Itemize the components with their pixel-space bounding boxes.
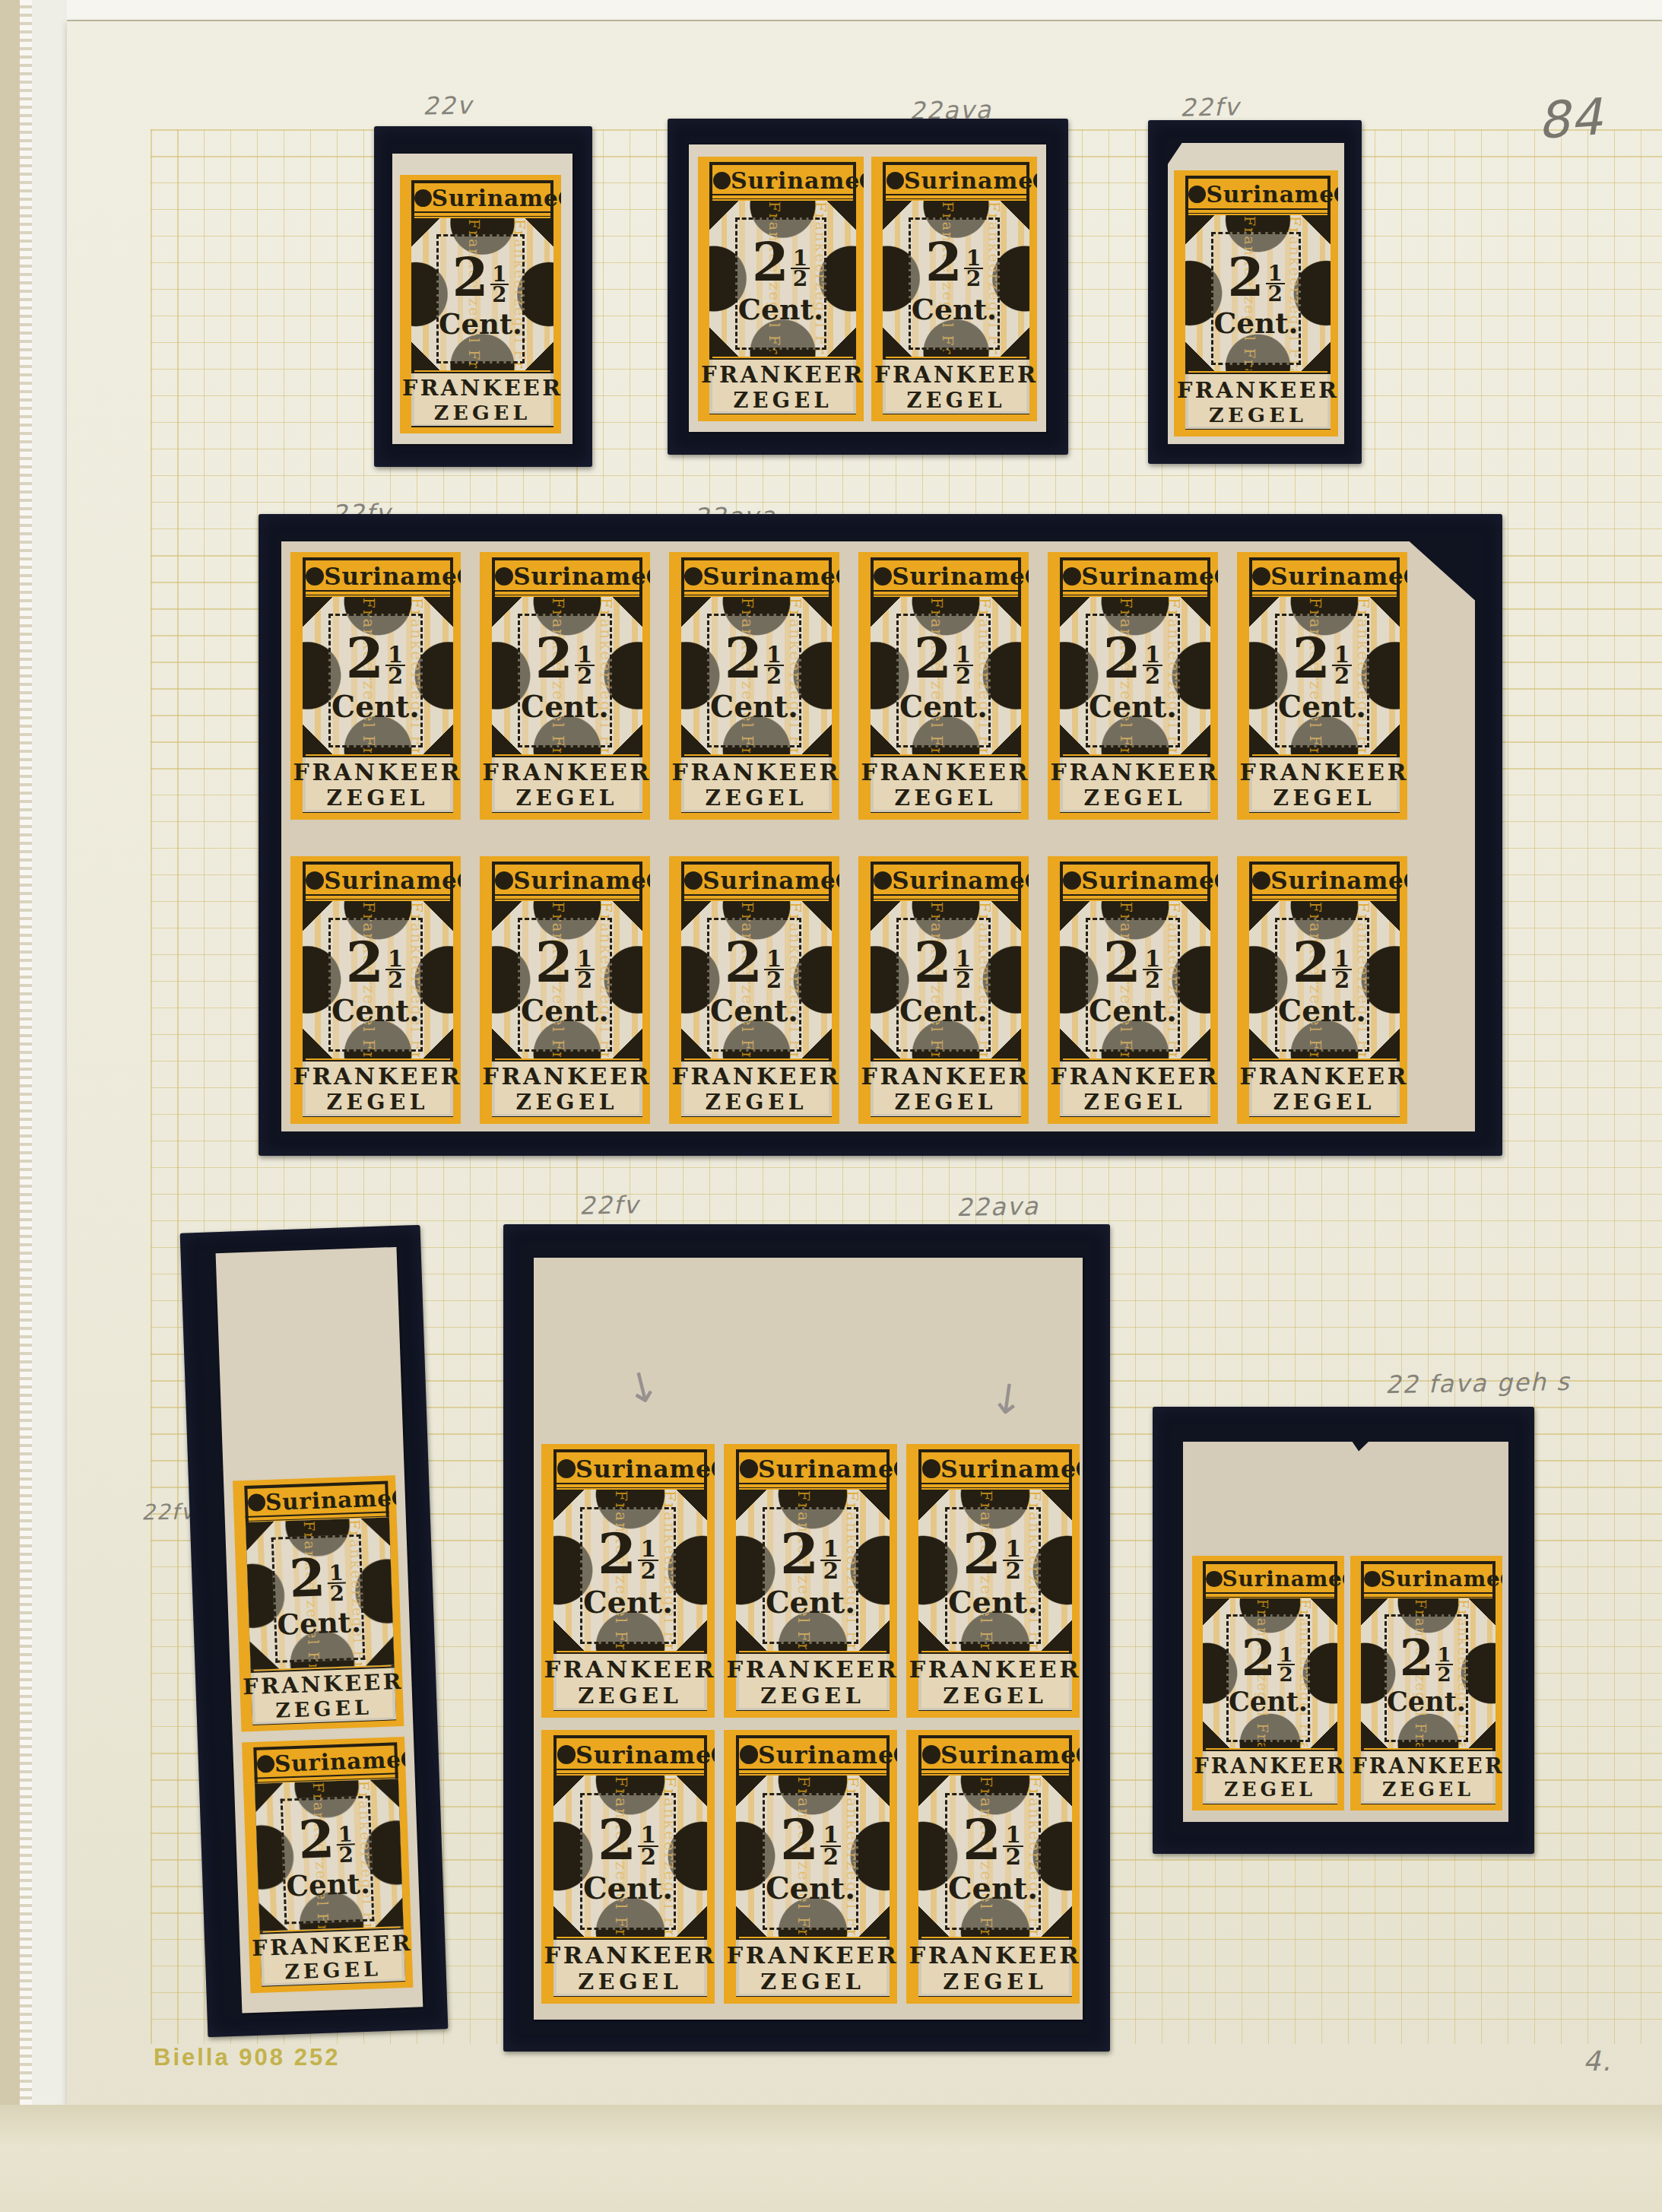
ornament-dot-icon: [1404, 567, 1407, 586]
stamp-value-number: 2 1 2: [963, 1531, 1023, 1582]
stamp-rule: [918, 1769, 1072, 1774]
stamp-value-fraction: 1 2: [575, 949, 595, 990]
stamp-bottom-line2: ZEGEL: [1224, 1778, 1316, 1801]
ornament-dot-icon: [1404, 871, 1407, 890]
stamp-value-int: 2: [963, 1817, 1001, 1862]
annotation-bottom-block-right: 22ava: [956, 1192, 1040, 1222]
stamp-country-label: Suriname: [513, 563, 647, 590]
stamp-value-number: 2 1 2: [925, 241, 983, 288]
stamp-value-int: 2: [297, 1818, 335, 1861]
stamp-value-fraction: 1 2: [1277, 1646, 1295, 1683]
stamp-value-int: 2: [1292, 941, 1331, 985]
ornament-dot-icon: [1343, 1571, 1344, 1588]
stamp-rule: [918, 1483, 1072, 1488]
stamp-value-int: 2: [914, 941, 952, 985]
fraction-denominator: 2: [766, 666, 782, 686]
stamp-country-label: Suriname: [1223, 1566, 1343, 1592]
ornament-dot-icon: [647, 567, 650, 586]
stamp-grid: Frankeerzegel Suriname Frankeerzegel Fra…: [281, 541, 1475, 1124]
stamp-bottom-line2: ZEGEL: [705, 785, 807, 811]
suriname-stamp: Frankeerzegel Suriname Frankeerzegel Fra…: [1350, 1556, 1502, 1811]
stamp-value-fraction: 1 2: [820, 1825, 841, 1867]
ornament-dot-icon: [894, 1745, 897, 1763]
stamp-value-unit: Cent.: [1278, 993, 1366, 1028]
fraction-denominator: 2: [338, 1845, 354, 1864]
stamp-value-fraction: 1 2: [953, 645, 973, 686]
stamp-value-box: 2 1 2 Cent.: [763, 1793, 858, 1930]
stamp-rule: [1361, 1592, 1495, 1598]
stamp-value-int: 2: [1400, 1639, 1434, 1678]
ornament-dot-icon: [1063, 871, 1081, 890]
stamp-grid: Frankeerzegel Suriname Frankeerzegel Fra…: [1168, 143, 1344, 436]
stamp-value-unit: Cent.: [912, 292, 997, 326]
ornament-dot-icon: [684, 567, 703, 586]
stamp-value-number: 2 1 2: [725, 636, 784, 685]
stamp-value-int: 2: [780, 1531, 819, 1576]
fraction-denominator: 2: [956, 970, 971, 990]
stamp-bottom-band: FRANKEER ZEGEL: [492, 756, 642, 812]
ornament-dot-icon: [647, 871, 650, 890]
ornament-dot-icon: [1215, 567, 1218, 586]
ornament-dot-icon: [836, 567, 839, 586]
stamp-value-int: 2: [288, 1557, 325, 1599]
stamp-country-band: Suriname: [411, 185, 554, 212]
stamp-paper: Frankeerzegel Suriname Frankeerzegel Fra…: [1183, 1442, 1508, 1822]
stamp-value-box: 2 1 2 Cent.: [763, 1507, 858, 1644]
stamp-value-number: 2 1 2: [780, 1531, 841, 1582]
stamp-bottom-line1: FRANKEER: [243, 1668, 404, 1699]
stamp-value-int: 2: [535, 636, 573, 681]
fraction-denominator: 2: [577, 970, 592, 990]
stamp-value-box: 2 1 2 Cent.: [436, 234, 525, 363]
stamp-value-unit: Cent.: [710, 689, 798, 724]
stamp-country-label: Suriname: [576, 1455, 712, 1483]
stamp-bottom-line2: ZEGEL: [578, 1969, 682, 1995]
stamp-value-fraction: 1 2: [1435, 1646, 1453, 1683]
stamp-bottom-band: FRANKEER ZEGEL: [1249, 756, 1400, 812]
stamp-value-box: 2 1 2 Cent.: [271, 1534, 365, 1663]
stamp-bottom-band: FRANKEER ZEGEL: [681, 756, 832, 812]
stamp-value-fraction: 1 2: [575, 645, 595, 686]
page-number: 84: [1535, 87, 1604, 151]
ornament-dot-icon: [414, 189, 432, 207]
fraction-denominator: 2: [823, 1847, 839, 1868]
stamp-bottom-line1: FRANKEER: [1051, 1063, 1218, 1090]
stamp-value-number: 2 1 2: [914, 636, 973, 685]
stamp-value-unit: Cent.: [1089, 993, 1177, 1028]
stamp-value-fraction: 1 2: [791, 249, 810, 289]
stamp-value-unit: Cent.: [1278, 689, 1366, 724]
ornament-dot-icon: [306, 871, 324, 890]
stamp-country-label: Suriname: [1270, 563, 1404, 590]
stamp-country-label: Suriname: [324, 563, 458, 590]
stamp-value-int: 2: [925, 241, 963, 284]
stamp-country-band: Suriname: [1185, 180, 1331, 208]
stitched-page-edge: [20, 0, 32, 2212]
ornament-dot-icon: [1501, 1571, 1502, 1588]
ornament-dot-icon: [1026, 871, 1029, 890]
fraction-denominator: 2: [1005, 1561, 1021, 1582]
fraction-denominator: 2: [492, 285, 506, 304]
stamp-mount-top-middle: Frankeerzegel Suriname Frankeerzegel Fra…: [668, 119, 1068, 455]
fraction-denominator: 2: [1267, 284, 1282, 303]
stamp-value-fraction: 1 2: [490, 265, 509, 304]
album-binding-strip: [0, 0, 67, 2212]
stamp-value-box: 2 1 2 Cent.: [281, 1795, 374, 1924]
stamp-country-band: Suriname: [1203, 1566, 1337, 1592]
stamp-bottom-band: FRANKEER ZEGEL: [871, 756, 1021, 812]
stamp-value-unit: Cent.: [521, 689, 609, 724]
suriname-stamp: Frankeerzegel Suriname Frankeerzegel Fra…: [858, 856, 1029, 1124]
stamp-value-fraction: 1 2: [764, 949, 784, 990]
ornament-dot-icon: [922, 1459, 940, 1477]
stamp-value-int: 2: [963, 1531, 1001, 1576]
stamp-value-box: 2 1 2 Cent.: [1086, 614, 1179, 747]
stamp-bottom-line1: FRANKEER: [1177, 377, 1338, 403]
ornament-dot-icon: [559, 189, 561, 207]
stamp-value-fraction: 1 2: [1003, 1539, 1023, 1581]
stamp-bottom-line1: FRANKEER: [1194, 1754, 1344, 1778]
ornament-dot-icon: [740, 1459, 758, 1477]
stamp-country-band: Suriname: [736, 1455, 890, 1484]
stamp-value-int: 2: [1103, 941, 1141, 985]
stamp-value-box: 2 1 2 Cent.: [1275, 918, 1369, 1052]
stamp-bottom-line2: ZEGEL: [943, 1969, 1047, 1995]
stamp-rule: [553, 1483, 707, 1488]
fraction-denominator: 2: [640, 1847, 656, 1868]
stamp-bottom-band: FRANKEER ZEGEL: [1060, 756, 1210, 812]
ornament-dot-icon: [887, 172, 904, 189]
fraction-denominator: 2: [1005, 1847, 1021, 1868]
ornament-dot-icon: [1206, 1571, 1223, 1588]
suriname-stamp: Frankeerzegel Suriname Frankeerzegel Fra…: [698, 157, 864, 421]
stamp-bottom-line1: FRANKEER: [726, 1941, 897, 1969]
stamp-value-fraction: 1 2: [326, 1563, 346, 1603]
stamp-bottom-line2: ZEGEL: [1083, 785, 1186, 811]
stamp-value-fraction: 1 2: [764, 645, 784, 686]
stamp-value-int: 2: [725, 941, 763, 985]
stamp-bottom-line1: FRANKEER: [701, 362, 864, 388]
stamp-mount-bottom-left: Frankeerzegel Suriname Frankeerzegel Fra…: [180, 1225, 449, 2037]
ornament-dot-icon: [257, 1755, 275, 1773]
stamp-value-unit: Cent.: [948, 1871, 1038, 1906]
stamp-bottom-line1: FRANKEER: [402, 375, 561, 401]
stamp-value-int: 2: [1242, 1639, 1276, 1678]
stamp-country-band: Suriname: [736, 1741, 890, 1769]
stamp-rule: [303, 894, 453, 900]
ornament-dot-icon: [836, 871, 839, 890]
fraction-denominator: 2: [1280, 1665, 1293, 1683]
stamp-bottom-band: FRANKEER ZEGEL: [260, 1928, 406, 1985]
stamp-bottom-band: FRANKEER ZEGEL: [553, 1938, 707, 1996]
stamp-country-label: Suriname: [703, 867, 836, 894]
stamp-rule: [883, 194, 1029, 199]
stamp-country-label: Suriname: [513, 867, 647, 894]
stamp-value-box: 2 1 2 Cent.: [945, 1793, 1040, 1930]
ornament-dot-icon: [557, 1745, 576, 1763]
stamp-value-int: 2: [598, 1817, 636, 1862]
stamp-country-band: Suriname: [492, 866, 642, 894]
stamp-paper: Frankeerzegel Suriname Frankeerzegel Fra…: [281, 541, 1475, 1131]
stamp-bottom-line1: FRANKEER: [672, 759, 839, 785]
stamp-value-number: 2 1 2: [725, 941, 784, 989]
stamp-bottom-line2: ZEGEL: [284, 1957, 382, 1984]
stamp-bottom-band: FRANKEER ZEGEL: [303, 756, 453, 812]
stamp-mount-large-block: Frankeerzegel Suriname Frankeerzegel Fra…: [258, 514, 1502, 1156]
suriname-stamp: Frankeerzegel Suriname Frankeerzegel Fra…: [541, 1730, 715, 2004]
stamp-country-label: Suriname: [1081, 563, 1215, 590]
stamp-rule: [1060, 590, 1210, 595]
ornament-dot-icon: [1188, 186, 1206, 203]
stamp-bottom-line1: FRANKEER: [544, 1655, 715, 1683]
stamp-value-number: 2 1 2: [288, 1556, 347, 1604]
stamp-bottom-line1: FRANKEER: [861, 1063, 1029, 1090]
ornament-dot-icon: [458, 871, 461, 890]
ornament-dot-icon: [1026, 567, 1029, 586]
fraction-denominator: 2: [956, 666, 971, 686]
stamp-country-band: Suriname: [553, 1455, 707, 1484]
stamp-country-band: Suriname: [709, 167, 856, 195]
stamp-value-int: 2: [535, 941, 573, 985]
stamp-country-band: Suriname: [681, 866, 832, 894]
stamp-country-label: Suriname: [940, 1455, 1077, 1483]
ornament-dot-icon: [458, 567, 461, 586]
suriname-stamp: Frankeerzegel Suriname Frankeerzegel Fra…: [541, 1444, 715, 1718]
stamp-rule: [492, 894, 642, 900]
stamp-bottom-band: FRANKEER ZEGEL: [1249, 1060, 1400, 1116]
ornament-dot-icon: [740, 1745, 758, 1763]
stamp-value-number: 2 1 2: [1292, 636, 1352, 685]
stamp-grid: Frankeerzegel Suriname Frankeerzegel Fra…: [534, 1258, 1083, 2004]
ornament-dot-icon: [1334, 186, 1338, 203]
stamp-bottom-line2: ZEGEL: [705, 1090, 807, 1115]
ornament-dot-icon: [306, 567, 324, 586]
stamp-value-box: 2 1 2 Cent.: [1211, 232, 1302, 365]
stamp-value-box: 2 1 2 Cent.: [735, 217, 826, 350]
stamp-value-box: 2 1 2 Cent.: [580, 1793, 675, 1930]
suriname-stamp: Frankeerzegel Suriname Frankeerzegel Fra…: [1237, 856, 1407, 1124]
stamp-bottom-line1: FRANKEER: [1051, 759, 1218, 785]
suriname-stamp: Frankeerzegel Suriname Frankeerzegel Fra…: [233, 1475, 404, 1731]
stamp-bottom-band: FRANKEER ZEGEL: [709, 358, 856, 414]
stamp-value-fraction: 1 2: [1332, 949, 1352, 990]
ornament-dot-icon: [894, 1459, 897, 1477]
stamp-value-number: 2 1 2: [914, 941, 973, 989]
stamp-value-unit: Cent.: [583, 1585, 673, 1620]
stamp-paper: Frankeerzegel Suriname Frankeerzegel Fra…: [689, 144, 1046, 432]
stamp-bottom-line2: ZEGEL: [1382, 1778, 1474, 1801]
ornament-dot-icon: [401, 1750, 413, 1769]
stamp-bottom-line1: FRANKEER: [252, 1930, 413, 1961]
stamp-bottom-band: FRANKEER ZEGEL: [681, 1060, 832, 1116]
stamp-value-number: 2 1 2: [297, 1817, 356, 1866]
fraction-denominator: 2: [388, 666, 403, 686]
stamp-country-band: Suriname: [918, 1741, 1072, 1769]
stamp-value-unit: Cent.: [286, 1867, 370, 1903]
stamp-value-fraction: 1 2: [1266, 264, 1285, 303]
annotation-top-left: 22v: [423, 90, 473, 120]
stamp-country-label: Suriname: [1270, 867, 1404, 894]
fraction-denominator: 2: [329, 1584, 344, 1603]
stamp-value-number: 2 1 2: [1103, 636, 1162, 685]
stamp-value-fraction: 1 2: [638, 1539, 658, 1581]
ornament-dot-icon: [712, 1745, 715, 1763]
stamp-grid: Frankeerzegel Suriname Frankeerzegel Fra…: [689, 144, 1046, 421]
stamp-bottom-line2: ZEGEL: [760, 1683, 864, 1709]
stamp-value-box: 2 1 2 Cent.: [518, 614, 611, 747]
stamp-bottom-band: FRANKEER ZEGEL: [736, 1652, 890, 1710]
ornament-dot-icon: [874, 567, 892, 586]
stamp-value-fraction: 1 2: [964, 249, 983, 289]
ornament-dot-icon: [712, 1459, 715, 1477]
stamp-value-fraction: 1 2: [820, 1539, 841, 1581]
suriname-stamp: Frankeerzegel Suriname Frankeerzegel Fra…: [480, 552, 650, 820]
stamp-bottom-line2: ZEGEL: [326, 785, 429, 811]
fraction-denominator: 2: [766, 970, 782, 990]
stamp-bottom-line1: FRANKEER: [483, 759, 650, 785]
stamp-value-unit: Cent.: [439, 307, 522, 341]
stamp-value-box: 2 1 2 Cent.: [1275, 614, 1369, 747]
stamp-grid: Frankeerzegel Suriname Frankeerzegel Fra…: [216, 1247, 423, 1994]
stamp-bottom-band: FRANKEER ZEGEL: [1185, 373, 1331, 429]
stamp-rule: [1249, 590, 1400, 595]
suriname-stamp: Frankeerzegel Suriname Frankeerzegel Fra…: [669, 856, 839, 1124]
suriname-stamp: Frankeerzegel Suriname Frankeerzegel Fra…: [290, 552, 461, 820]
stamp-value-int: 2: [752, 241, 789, 284]
stamp-value-box: 2 1 2 Cent.: [328, 614, 422, 747]
stamp-value-box: 2 1 2 Cent.: [580, 1507, 675, 1644]
suriname-stamp: Frankeerzegel Suriname Frankeerzegel Fra…: [906, 1444, 1080, 1718]
stamp-country-band: Suriname: [303, 562, 453, 590]
stamp-value-box: 2 1 2 Cent.: [707, 918, 801, 1052]
ornament-dot-icon: [1215, 871, 1218, 890]
suriname-stamp: Frankeerzegel Suriname Frankeerzegel Fra…: [724, 1730, 897, 2004]
stamp-value-number: 2 1 2: [346, 941, 405, 989]
corner-note: 4.: [1583, 2045, 1613, 2077]
ornament-dot-icon: [495, 871, 513, 890]
stamp-value-int: 2: [1103, 636, 1141, 681]
ornament-dot-icon: [684, 871, 703, 890]
stamp-value-unit: Cent.: [710, 993, 798, 1028]
stamp-value-unit: Cent.: [331, 689, 420, 724]
stamp-bottom-line2: ZEGEL: [733, 388, 833, 412]
stamp-country-label: Suriname: [432, 185, 559, 211]
stamp-country-label: Suriname: [940, 1741, 1077, 1769]
ornament-dot-icon: [874, 871, 892, 890]
stamp-value-number: 2 1 2: [963, 1817, 1023, 1868]
stamp-rule: [709, 194, 856, 199]
ornament-dot-icon: [1364, 1571, 1381, 1588]
stamp-value-unit: Cent.: [1089, 689, 1177, 724]
suriname-stamp: Frankeerzegel Suriname Frankeerzegel Fra…: [871, 157, 1037, 421]
stamp-country-band: Suriname: [681, 562, 832, 590]
ornament-dot-icon: [1063, 567, 1081, 586]
fraction-denominator: 2: [793, 269, 808, 288]
stamp-country-label: Suriname: [324, 867, 458, 894]
stamp-value-unit: Cent.: [521, 993, 609, 1028]
stamp-country-label: Suriname: [904, 167, 1033, 194]
fraction-denominator: 2: [577, 666, 592, 686]
ornament-dot-icon: [1252, 871, 1270, 890]
stamp-grid: Frankeerzegel Suriname Frankeerzegel Fra…: [1183, 1442, 1508, 1811]
stamp-value-unit: Cent.: [899, 993, 988, 1028]
stamp-bottom-line1: FRANKEER: [293, 1063, 461, 1090]
stamp-value-unit: Cent.: [766, 1585, 855, 1620]
stamp-value-fraction: 1 2: [638, 1825, 658, 1867]
stamp-value-number: 2 1 2: [1227, 256, 1284, 303]
stamp-rule: [492, 590, 642, 595]
annotation-top-right: 22fv: [1180, 92, 1241, 122]
stamp-bottom-line2: ZEGEL: [434, 401, 531, 424]
stamp-value-number: 2 1 2: [452, 257, 509, 303]
stamp-rule: [1185, 208, 1331, 214]
stamp-bottom-band: FRANKEER ZEGEL: [251, 1666, 397, 1724]
suriname-stamp: Frankeerzegel Suriname Frankeerzegel Fra…: [1048, 552, 1218, 820]
ornament-dot-icon: [1252, 567, 1270, 586]
stamp-value-int: 2: [1227, 256, 1264, 298]
stamp-bottom-line1: FRANKEER: [672, 1063, 839, 1090]
stamp-value-unit: Cent.: [948, 1585, 1038, 1620]
stamp-country-label: Suriname: [892, 867, 1026, 894]
ornament-dot-icon: [713, 172, 731, 189]
stamp-value-unit: Cent.: [766, 1871, 855, 1906]
fraction-denominator: 2: [1145, 666, 1160, 686]
stamp-value-fraction: 1 2: [953, 949, 973, 990]
ornament-dot-icon: [1077, 1459, 1080, 1477]
stamp-value-number: 2 1 2: [346, 636, 405, 685]
ornament-dot-icon: [1077, 1745, 1080, 1763]
stamp-rule: [553, 1769, 707, 1774]
stamp-bottom-line2: ZEGEL: [894, 1090, 997, 1115]
stamp-bottom-line1: FRANKEER: [293, 759, 461, 785]
suriname-stamp: Frankeerzegel Suriname Frankeerzegel Fra…: [858, 552, 1029, 820]
fraction-denominator: 2: [640, 1561, 656, 1582]
stamp-value-int: 2: [346, 941, 384, 985]
stamp-value-box: 2 1 2 Cent.: [518, 918, 611, 1052]
ornament-dot-icon: [495, 567, 513, 586]
stamp-value-int: 2: [1292, 636, 1331, 681]
stamp-rule: [411, 211, 554, 217]
stamp-bottom-band: FRANKEER ZEGEL: [1060, 1060, 1210, 1116]
stamp-bottom-line1: FRANKEER: [1352, 1754, 1502, 1778]
stamp-mount-top-right: Frankeerzegel Suriname Frankeerzegel Fra…: [1148, 120, 1362, 464]
stamp-country-band: Suriname: [1249, 866, 1400, 894]
stamp-rule: [681, 894, 832, 900]
stamp-bottom-line2: ZEGEL: [515, 785, 618, 811]
ornament-dot-icon: [248, 1494, 266, 1512]
stamp-value-box: 2 1 2 Cent.: [909, 217, 1000, 350]
stamp-value-number: 2 1 2: [1242, 1639, 1296, 1683]
stamp-bottom-band: FRANKEER ZEGEL: [736, 1938, 890, 1996]
stamp-value-number: 2 1 2: [752, 241, 810, 288]
ornament-dot-icon: [392, 1489, 404, 1507]
stamp-bottom-band: FRANKEER ZEGEL: [883, 358, 1029, 414]
album-brand-imprint: Biella 908 252: [154, 2044, 340, 2071]
stamp-country-band: Suriname: [871, 562, 1021, 590]
stamp-bottom-line1: FRANKEER: [1240, 1063, 1407, 1090]
stamp-bottom-line2: ZEGEL: [1083, 1090, 1186, 1115]
stamp-bottom-line1: FRANKEER: [726, 1655, 897, 1683]
stamp-bottom-line2: ZEGEL: [275, 1696, 373, 1722]
stamp-country-band: Suriname: [1361, 1566, 1495, 1592]
ornament-dot-icon: [1033, 172, 1037, 189]
stamp-value-number: 2 1 2: [1400, 1639, 1454, 1683]
stamp-value-box: 2 1 2 Cent.: [1384, 1614, 1468, 1742]
stamp-value-fraction: 1 2: [1003, 1825, 1023, 1867]
stamp-value-int: 2: [914, 636, 952, 681]
ornament-dot-icon: [860, 172, 864, 189]
stamp-bottom-band: FRANKEER ZEGEL: [1203, 1750, 1337, 1804]
